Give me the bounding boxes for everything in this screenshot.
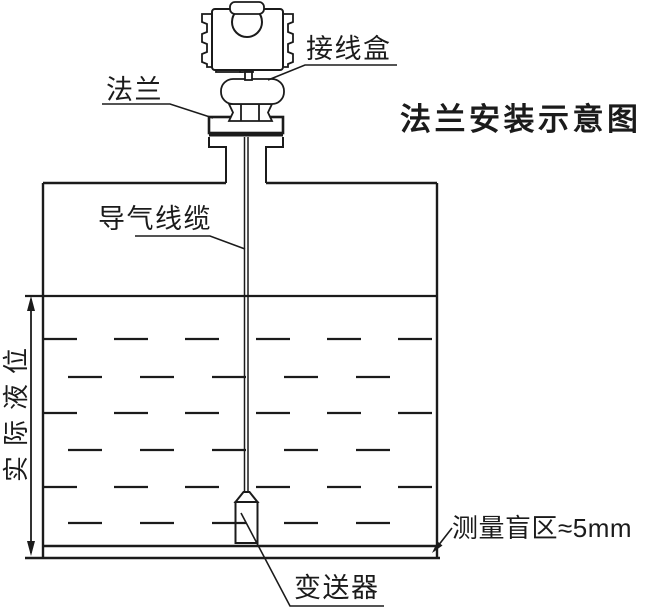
transmitter-label: 变送器 [294, 575, 380, 602]
right-cover-ribs [283, 14, 293, 67]
cable-leader [135, 236, 245, 249]
tank-nozzle [209, 137, 283, 183]
flange-installation-diagram: 接线盒 法兰 法兰安装示意图 导气线缆 实际液位 测量盲区≈5mm 变送器 [0, 0, 650, 612]
air-cable-label: 导气线缆 [98, 206, 212, 233]
liquid-dashes [43, 339, 432, 523]
blind-zone-label: 测量盲区≈5mm [452, 515, 632, 541]
air-guide-cable [245, 137, 249, 493]
hex-nut [229, 104, 272, 121]
tank-outline [25, 183, 440, 558]
top-cap-band [230, 2, 264, 14]
transmitter-head [202, 2, 293, 121]
left-cover-ribs [202, 14, 212, 67]
junction-box-label: 接线盒 [306, 36, 392, 63]
flange-leader [102, 104, 213, 118]
flange-label: 法兰 [106, 77, 163, 104]
process-bonnet [221, 79, 284, 104]
probe-body [236, 492, 258, 543]
diagram-title: 法兰安装示意图 [400, 104, 642, 135]
actual-level-label: 实际液位 [3, 338, 29, 482]
